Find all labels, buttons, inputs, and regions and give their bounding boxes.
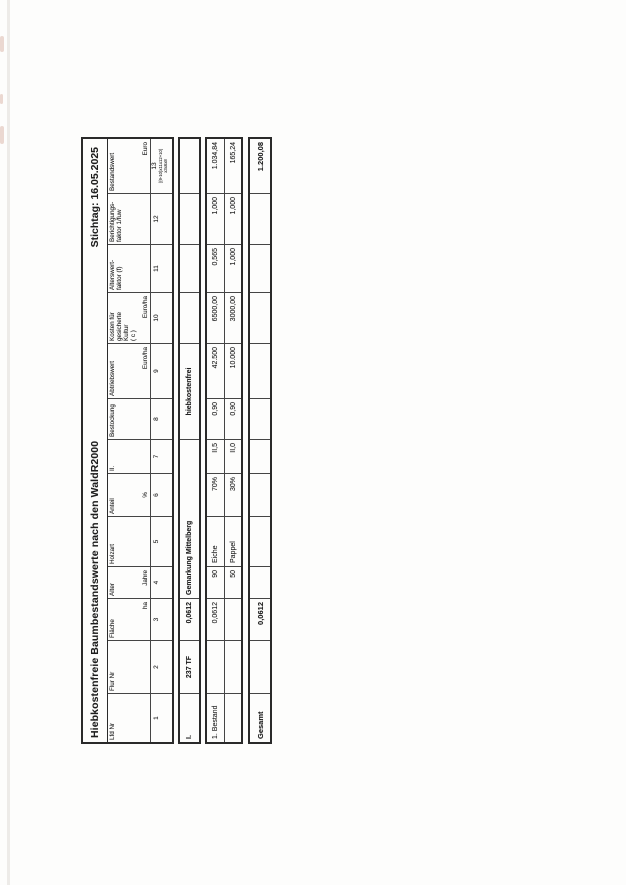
bestandswert-formula: x3x6x8 xyxy=(163,141,168,191)
scan-edge-line xyxy=(7,0,10,885)
cell-holzart: Pappel xyxy=(224,517,241,567)
cell-alterswertfaktor: 1,000 xyxy=(224,245,241,293)
col-header-alterswertfaktor: Alterswert- faktor (f) xyxy=(108,245,150,293)
cell-flaeche: 0,0612 xyxy=(207,599,224,641)
col-num: 2 xyxy=(150,641,172,694)
section-row: I. 237 TF 0,0612 Gemarkung Mittelberg hi… xyxy=(180,139,199,742)
cell-alterswertfaktor: 0,565 xyxy=(207,245,224,293)
cell-bestandswert: 165,24 xyxy=(224,139,241,194)
col-header-lfd-nr: Lfd Nr xyxy=(108,694,150,742)
cell-empty xyxy=(180,245,199,293)
cell-berichtigungsfaktor: 1,000 xyxy=(207,194,224,245)
col-header-holzart: Holzart xyxy=(108,517,150,567)
cell-alter: 90 xyxy=(207,567,224,599)
cell-holzart: Eiche xyxy=(207,517,224,567)
cell-stand-label xyxy=(224,694,241,742)
cell-flaeche: 0,0612 xyxy=(180,599,199,641)
cell-anteil: 70% xyxy=(207,474,224,517)
cell-kosten: 3000,00 xyxy=(224,293,241,344)
col-header-bestockung: Bestockung xyxy=(108,399,150,440)
cell-kosten: 6500,00 xyxy=(207,293,224,344)
stichtag-date: Stichtag: 16.05.2025 xyxy=(89,147,101,247)
unit-percent: % xyxy=(142,492,149,498)
cell-abtriebswert: 10.000 xyxy=(224,344,241,399)
col-header-kosten-kultur: Kosten für gesicherte Kultur ( c )Euro/h… xyxy=(108,293,150,344)
cell-empty xyxy=(180,194,199,245)
col-header-bestandswert: BestandswertEuro xyxy=(108,139,150,194)
col-header-berichtigungsfaktor: Berichtigungs- faktor 1/fuw xyxy=(108,194,150,245)
cell-flur-nr: 237 TF xyxy=(180,641,199,694)
cell-empty xyxy=(250,344,270,399)
cell-bestandswert: 1.034,84 xyxy=(207,139,224,194)
unit-euro-ha: Euro/ha xyxy=(142,347,149,369)
col-num: 12 xyxy=(150,194,172,245)
cell-section-number: I. xyxy=(180,694,199,742)
cell-empty xyxy=(250,517,270,567)
column-number-row: 1 2 3 4 5 6 7 8 9 10 11 12 13 ((9-10)x11… xyxy=(150,139,172,742)
cell-alter: 50 xyxy=(224,567,241,599)
col-header-anteil: Anteil% xyxy=(108,474,150,517)
stand-row: 50 Pappel 30% II,0 0,90 10.000 3000,00 1… xyxy=(224,139,241,742)
cell-empty xyxy=(250,194,270,245)
title-row: Hiebkostenfreie Baumbestandswerte nach d… xyxy=(83,139,108,742)
cell-bestandswert-total: 1.200,08 xyxy=(250,139,270,194)
unit-jahre: Jahre xyxy=(142,570,149,586)
cell-abtriebswert: 42.500 xyxy=(207,344,224,399)
document-title: Hiebkostenfreie Baumbestandswerte nach d… xyxy=(89,441,101,738)
cell-flur-nr xyxy=(224,641,241,694)
stand-row: 1. Bestand 0,0612 90 Eiche 70% II,5 0,90… xyxy=(207,139,224,742)
cell-empty xyxy=(250,293,270,344)
col-header-alter: AlterJahre xyxy=(108,567,150,599)
col-num: 10 xyxy=(150,293,172,344)
col-num-formula: 13 ((9-10)x11x12+10) x3x6x8 xyxy=(150,139,172,194)
unit-ha: ha xyxy=(142,602,149,609)
col-header-flur-nr: Flur Nr xyxy=(108,641,150,694)
cell-flur-nr xyxy=(207,641,224,694)
cell-empty xyxy=(180,139,199,194)
col-header-flaeche: Flächeha xyxy=(108,599,150,641)
cell-anteil: 30% xyxy=(224,474,241,517)
cell-ertragsklasse: II,0 xyxy=(224,440,241,474)
total-row: Gesamt 0,0612 1.200,08 xyxy=(250,139,270,742)
cell-empty xyxy=(250,641,270,694)
scan-artifact xyxy=(0,36,4,52)
cell-bestockung: 0,90 xyxy=(207,399,224,440)
scan-artifact xyxy=(0,94,3,104)
col-num: 11 xyxy=(150,245,172,293)
unit-euro-ha: Euro/ha xyxy=(142,296,149,318)
cell-gesamt-label: Gesamt xyxy=(250,694,270,742)
cell-flaeche-total: 0,0612 xyxy=(250,599,270,641)
scanned-page: { "doc": { "title": "Hiebkostenfreie Bau… xyxy=(0,0,626,885)
cell-empty xyxy=(250,399,270,440)
col-num: 8 xyxy=(150,399,172,440)
cell-gemarkung: Gemarkung Mittelberg xyxy=(180,440,199,599)
col-num: 3 xyxy=(150,599,172,641)
col-num: 4 xyxy=(150,567,172,599)
cell-hiebkostenfrei: hiebkostenfrei xyxy=(180,344,199,440)
table-header-box: Hiebkostenfreie Baumbestandswerte nach d… xyxy=(81,137,174,744)
cell-empty xyxy=(250,440,270,474)
document-scan: Hiebkostenfreie Baumbestandswerte nach d… xyxy=(81,137,271,744)
bestandswert-formula: ((9-10)x11x12+10) xyxy=(158,141,163,191)
col-header-ertragsklasse: II. xyxy=(108,440,150,474)
col-num: 6 xyxy=(150,474,172,517)
unit-euro: Euro xyxy=(142,142,149,155)
cell-ertragsklasse: II,5 xyxy=(207,440,224,474)
col-num: 7 xyxy=(150,440,172,474)
cell-empty xyxy=(250,567,270,599)
scan-artifact xyxy=(0,126,4,144)
col-num: 1 xyxy=(150,694,172,742)
cell-berichtigungsfaktor: 1,000 xyxy=(224,194,241,245)
col-header-abtriebswert: AbtriebswertEuro/ha xyxy=(108,344,150,399)
section-row-box: I. 237 TF 0,0612 Gemarkung Mittelberg hi… xyxy=(178,137,201,744)
header-row: Lfd Nr Flur Nr Flächeha AlterJahre Holza… xyxy=(108,139,150,742)
col-num: 5 xyxy=(150,517,172,567)
total-box: Gesamt 0,0612 1.200,08 xyxy=(248,137,272,744)
col-num: 9 xyxy=(150,344,172,399)
cell-stand-label: 1. Bestand xyxy=(207,694,224,742)
cell-bestockung: 0,90 xyxy=(224,399,241,440)
cell-empty xyxy=(180,293,199,344)
stand-box: 1. Bestand 0,0612 90 Eiche 70% II,5 0,90… xyxy=(205,137,243,744)
cell-empty xyxy=(250,474,270,517)
cell-flaeche xyxy=(224,599,241,641)
cell-empty xyxy=(250,245,270,293)
